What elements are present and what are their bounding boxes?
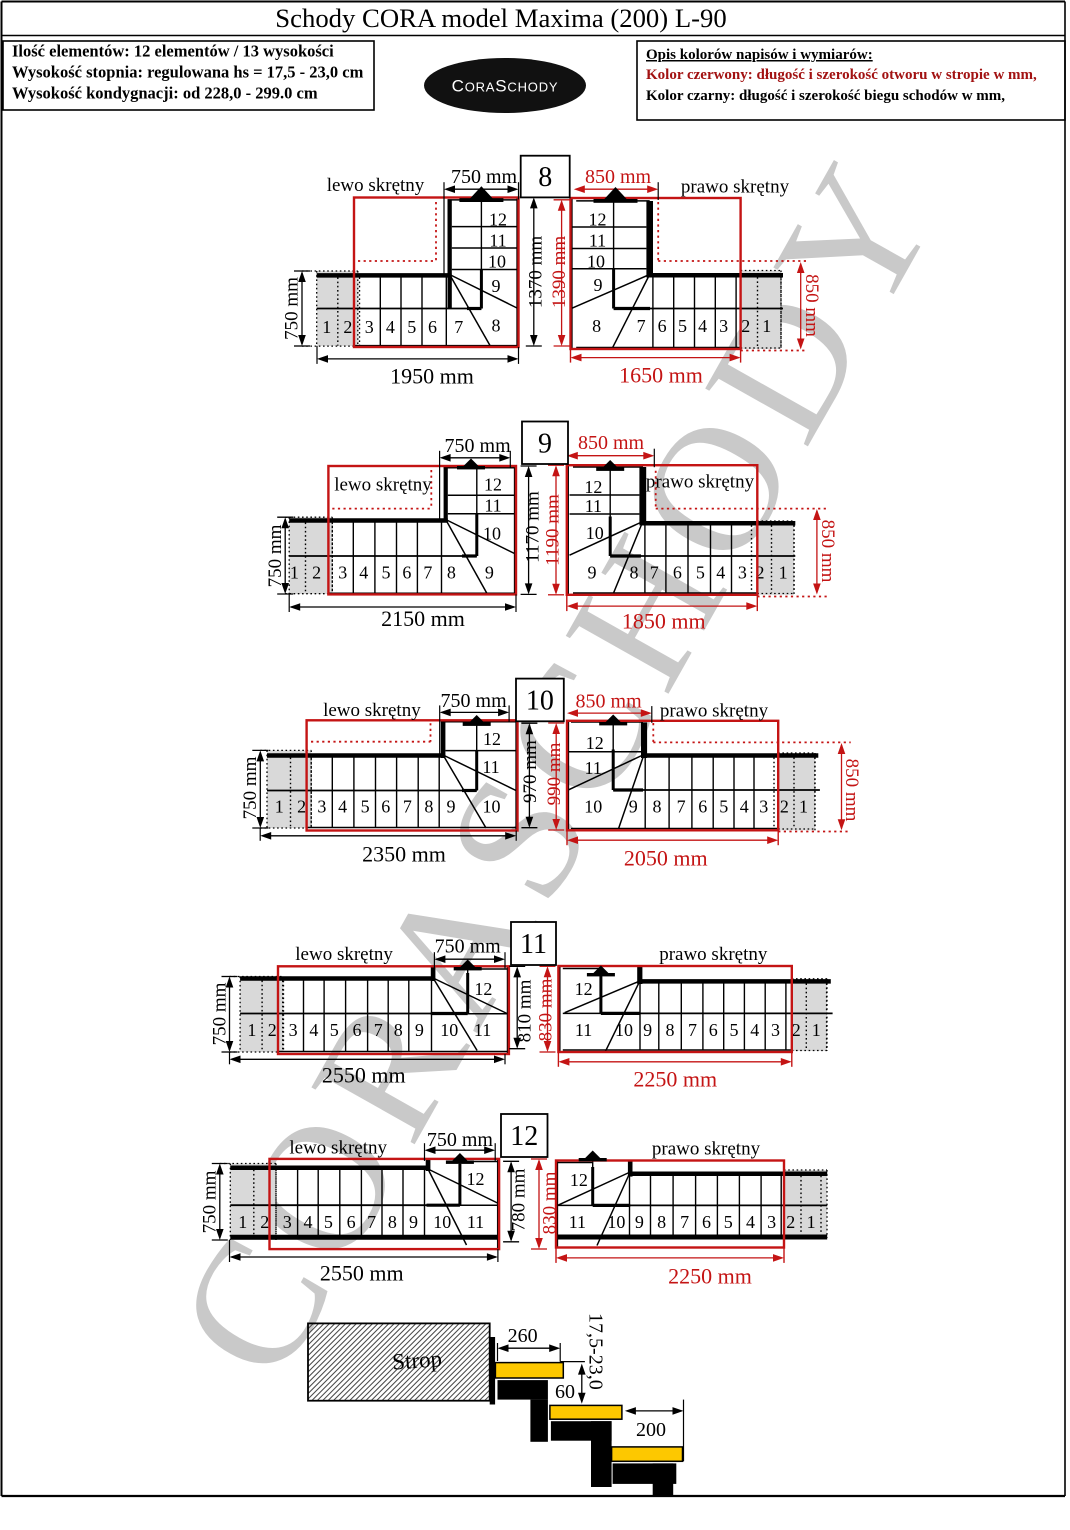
- svg-text:11: 11: [520, 929, 547, 960]
- svg-text:12: 12: [484, 475, 502, 495]
- svg-text:4: 4: [698, 316, 707, 336]
- svg-text:prawo skrętny: prawo skrętny: [646, 472, 755, 493]
- svg-text:7: 7: [677, 797, 686, 817]
- svg-text:10: 10: [433, 1212, 451, 1232]
- svg-text:1: 1: [247, 1020, 256, 1040]
- svg-text:2050 mm: 2050 mm: [624, 846, 708, 871]
- svg-text:1170 mm: 1170 mm: [523, 491, 544, 563]
- svg-text:2150 mm: 2150 mm: [381, 606, 465, 631]
- svg-text:6: 6: [702, 1212, 711, 1232]
- svg-text:Opis kolorów napisów i wymiaró: Opis kolorów napisów i wymiarów:: [646, 47, 873, 63]
- svg-text:6: 6: [673, 563, 682, 583]
- svg-text:lewo skrętny: lewo skrętny: [334, 475, 432, 496]
- svg-text:5: 5: [324, 1212, 333, 1232]
- svg-text:11: 11: [482, 757, 499, 777]
- svg-text:5: 5: [678, 316, 687, 336]
- svg-text:7: 7: [454, 317, 463, 337]
- svg-text:9: 9: [409, 1212, 418, 1232]
- svg-text:Wysokość kondygnacji: od 228,0: Wysokość kondygnacji: od 228,0 - 299.0 c…: [12, 84, 318, 103]
- svg-text:10: 10: [584, 797, 602, 817]
- svg-text:2550 mm: 2550 mm: [320, 1260, 404, 1285]
- svg-text:4: 4: [746, 1212, 755, 1232]
- svg-text:2250 mm: 2250 mm: [668, 1264, 752, 1289]
- svg-text:2: 2: [297, 797, 306, 817]
- svg-text:750 mm: 750 mm: [445, 435, 512, 457]
- svg-text:9: 9: [447, 797, 456, 817]
- svg-text:3: 3: [759, 797, 768, 817]
- svg-text:8: 8: [388, 1212, 397, 1232]
- svg-text:9: 9: [588, 563, 597, 583]
- svg-text:prawo skrętny: prawo skrętny: [660, 701, 769, 722]
- svg-text:4: 4: [386, 317, 395, 337]
- svg-text:750 mm: 750 mm: [427, 1129, 494, 1151]
- svg-text:2250 mm: 2250 mm: [633, 1067, 717, 1092]
- svg-text:4: 4: [359, 563, 368, 583]
- svg-text:2: 2: [268, 1020, 277, 1040]
- svg-text:6: 6: [347, 1212, 356, 1232]
- svg-text:5: 5: [719, 797, 728, 817]
- svg-text:750 mm: 750 mm: [435, 935, 502, 957]
- svg-text:750 mm: 750 mm: [441, 690, 508, 712]
- svg-text:12: 12: [483, 729, 501, 749]
- svg-text:1390 mm: 1390 mm: [549, 236, 570, 309]
- svg-text:1: 1: [762, 316, 771, 336]
- svg-text:8: 8: [424, 797, 433, 817]
- svg-text:5: 5: [724, 1212, 733, 1232]
- svg-text:5: 5: [407, 317, 416, 337]
- svg-text:850 mm: 850 mm: [576, 691, 643, 713]
- svg-text:5: 5: [696, 563, 705, 583]
- svg-text:17,5-23,0: 17,5-23,0: [585, 1313, 607, 1390]
- svg-text:2: 2: [343, 317, 352, 337]
- svg-text:1: 1: [322, 317, 331, 337]
- svg-text:lewo skrętny: lewo skrętny: [289, 1138, 387, 1159]
- svg-text:2: 2: [780, 797, 789, 817]
- svg-text:3: 3: [283, 1212, 292, 1232]
- svg-text:9: 9: [538, 428, 552, 459]
- svg-text:1850 mm: 1850 mm: [622, 609, 706, 634]
- svg-text:6: 6: [428, 317, 437, 337]
- svg-text:850 mm: 850 mm: [817, 520, 838, 583]
- svg-text:11: 11: [575, 1020, 592, 1040]
- svg-text:CORASCHODY: CORASCHODY: [452, 77, 559, 96]
- svg-text:Schody CORA model Maxima (200): Schody CORA model Maxima (200) L-90: [275, 3, 726, 33]
- svg-text:1: 1: [807, 1212, 816, 1232]
- svg-text:6: 6: [709, 1020, 718, 1040]
- svg-text:11: 11: [489, 231, 506, 251]
- svg-text:4: 4: [716, 563, 725, 583]
- svg-text:prawo skrętny: prawo skrętny: [652, 1139, 761, 1160]
- svg-text:4: 4: [309, 1020, 318, 1040]
- svg-text:12: 12: [570, 1170, 588, 1190]
- svg-text:1: 1: [238, 1212, 247, 1232]
- svg-text:7: 7: [423, 563, 432, 583]
- svg-text:8: 8: [538, 162, 552, 193]
- svg-text:9: 9: [629, 797, 638, 817]
- svg-text:9: 9: [485, 563, 494, 583]
- svg-text:Ilość elementów: 12 elementów: Ilość elementów: 12 elementów / 13 wysok…: [12, 42, 334, 61]
- svg-text:11: 11: [589, 231, 606, 251]
- svg-text:2: 2: [312, 563, 321, 583]
- svg-text:1190 mm: 1190 mm: [543, 494, 564, 566]
- svg-text:750 mm: 750 mm: [209, 982, 230, 1045]
- svg-text:1: 1: [812, 1020, 821, 1040]
- svg-text:5: 5: [330, 1020, 339, 1040]
- svg-text:7: 7: [403, 797, 412, 817]
- svg-text:1370 mm: 1370 mm: [525, 236, 546, 309]
- svg-text:10: 10: [607, 1212, 625, 1232]
- svg-text:850 mm: 850 mm: [801, 274, 822, 337]
- svg-text:6: 6: [658, 316, 667, 336]
- svg-text:5: 5: [730, 1020, 739, 1040]
- svg-text:10: 10: [526, 686, 554, 717]
- svg-text:850 mm: 850 mm: [841, 759, 862, 822]
- svg-text:2: 2: [786, 1212, 795, 1232]
- svg-text:9: 9: [492, 276, 501, 296]
- svg-text:7: 7: [650, 563, 659, 583]
- svg-text:5: 5: [382, 563, 391, 583]
- svg-text:10: 10: [615, 1020, 633, 1040]
- svg-text:1650 mm: 1650 mm: [619, 363, 703, 388]
- svg-text:3: 3: [289, 1020, 298, 1040]
- svg-text:750 mm: 750 mm: [282, 277, 303, 340]
- svg-text:7: 7: [637, 316, 646, 336]
- svg-text:810 mm: 810 mm: [515, 979, 536, 1042]
- svg-text:8: 8: [394, 1020, 403, 1040]
- svg-text:3: 3: [771, 1020, 780, 1040]
- svg-text:780 mm: 780 mm: [509, 1168, 530, 1231]
- svg-text:4: 4: [338, 797, 347, 817]
- svg-text:8: 8: [666, 1020, 675, 1040]
- svg-text:10: 10: [586, 523, 604, 543]
- svg-text:9: 9: [635, 1212, 644, 1232]
- svg-text:8: 8: [653, 797, 662, 817]
- svg-text:Strop: Strop: [391, 1346, 442, 1374]
- svg-text:6: 6: [381, 797, 390, 817]
- svg-text:12: 12: [474, 979, 492, 999]
- svg-text:9: 9: [594, 275, 603, 295]
- svg-text:1: 1: [275, 797, 284, 817]
- svg-text:3: 3: [738, 563, 747, 583]
- svg-text:1: 1: [779, 563, 788, 583]
- svg-text:3: 3: [719, 316, 728, 336]
- svg-text:10: 10: [483, 524, 501, 544]
- svg-text:3: 3: [767, 1212, 776, 1232]
- svg-text:12: 12: [467, 1169, 485, 1189]
- svg-text:11: 11: [467, 1212, 484, 1232]
- svg-text:8: 8: [630, 563, 639, 583]
- svg-text:12: 12: [586, 733, 604, 753]
- svg-text:4: 4: [304, 1212, 313, 1232]
- svg-text:6: 6: [402, 563, 411, 583]
- svg-text:11: 11: [484, 496, 501, 516]
- svg-text:750 mm: 750 mm: [451, 166, 518, 188]
- svg-text:2550 mm: 2550 mm: [322, 1063, 406, 1088]
- svg-text:Wysokość stopnia: regulowana: Wysokość stopnia: regulowana hs = 17,5 -…: [12, 63, 364, 82]
- svg-text:Kolor czerwony: długość i szer: Kolor czerwony: długość i szerokość otwo…: [646, 67, 1037, 83]
- svg-text:850 mm: 850 mm: [578, 432, 645, 454]
- svg-text:3: 3: [365, 317, 374, 337]
- svg-text:Kolor czarny: długość i szerok: Kolor czarny: długość i szerokość biegu …: [646, 88, 1005, 104]
- svg-text:2: 2: [260, 1212, 269, 1232]
- svg-text:lewo skrętny: lewo skrętny: [327, 175, 425, 196]
- svg-text:prawo skrętny: prawo skrętny: [659, 944, 768, 965]
- svg-text:200: 200: [636, 1419, 666, 1441]
- svg-text:11: 11: [585, 758, 602, 778]
- svg-text:60: 60: [555, 1381, 575, 1403]
- svg-text:3: 3: [338, 563, 347, 583]
- svg-text:10: 10: [587, 252, 605, 272]
- svg-text:lewo skrętny: lewo skrętny: [295, 944, 393, 965]
- svg-text:11: 11: [474, 1020, 491, 1040]
- svg-text:7: 7: [374, 1020, 383, 1040]
- svg-text:11: 11: [569, 1212, 586, 1232]
- svg-text:8: 8: [657, 1212, 666, 1232]
- svg-text:12: 12: [510, 1121, 538, 1152]
- svg-text:990 mm: 990 mm: [544, 742, 565, 805]
- svg-text:1950 mm: 1950 mm: [390, 364, 474, 389]
- svg-text:1: 1: [290, 563, 299, 583]
- svg-text:7: 7: [367, 1212, 376, 1232]
- svg-text:prawo skrętny: prawo skrętny: [681, 177, 790, 198]
- svg-text:8: 8: [492, 316, 501, 336]
- svg-text:12: 12: [575, 979, 593, 999]
- svg-text:750 mm: 750 mm: [265, 524, 286, 587]
- svg-text:2350 mm: 2350 mm: [362, 842, 446, 867]
- svg-text:6: 6: [698, 797, 707, 817]
- svg-text:1: 1: [799, 797, 808, 817]
- svg-text:10: 10: [440, 1020, 458, 1040]
- svg-text:260: 260: [508, 1325, 538, 1347]
- svg-text:4: 4: [740, 797, 749, 817]
- svg-text:12: 12: [589, 210, 607, 230]
- svg-text:2: 2: [741, 316, 750, 336]
- svg-text:6: 6: [353, 1020, 362, 1040]
- svg-text:7: 7: [680, 1212, 689, 1232]
- svg-text:10: 10: [483, 797, 501, 817]
- svg-text:11: 11: [585, 496, 602, 516]
- svg-text:3: 3: [317, 797, 326, 817]
- svg-text:8: 8: [592, 316, 601, 336]
- svg-text:2: 2: [792, 1020, 801, 1040]
- svg-text:750 mm: 750 mm: [240, 756, 261, 819]
- svg-text:9: 9: [643, 1020, 652, 1040]
- svg-text:lewo skrętny: lewo skrętny: [323, 700, 421, 721]
- svg-text:830 mm: 830 mm: [536, 978, 557, 1041]
- svg-text:5: 5: [361, 797, 370, 817]
- svg-text:750 mm: 750 mm: [200, 1170, 221, 1233]
- svg-text:12: 12: [584, 477, 602, 497]
- svg-text:10: 10: [488, 252, 506, 272]
- svg-text:4: 4: [750, 1020, 759, 1040]
- svg-text:9: 9: [415, 1020, 424, 1040]
- svg-text:7: 7: [688, 1020, 697, 1040]
- svg-text:970 mm: 970 mm: [520, 740, 541, 803]
- svg-text:12: 12: [489, 210, 507, 230]
- svg-text:8: 8: [447, 563, 456, 583]
- svg-text:850 mm: 850 mm: [585, 166, 652, 188]
